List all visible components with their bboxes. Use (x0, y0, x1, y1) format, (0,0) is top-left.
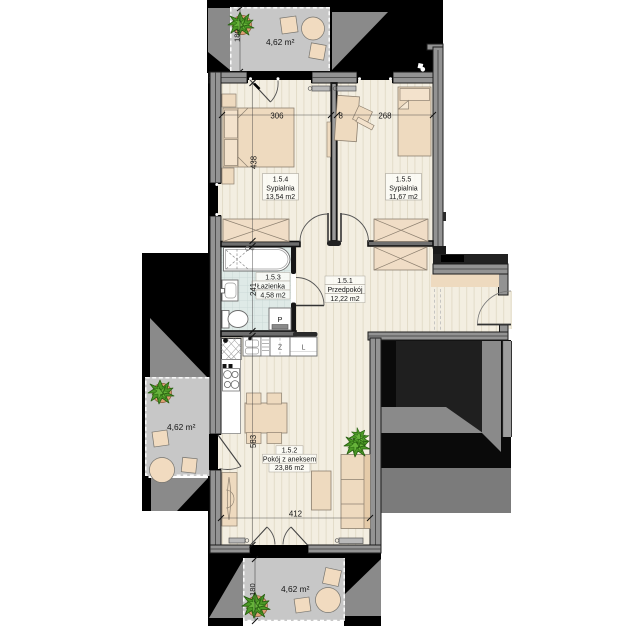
svg-text:268: 268 (378, 112, 392, 121)
svg-text:1.5.1: 1.5.1 (337, 278, 353, 285)
svg-text:4,58 m2: 4,58 m2 (260, 293, 285, 300)
svg-text:L: L (302, 345, 306, 352)
svg-text:1.5.5: 1.5.5 (396, 177, 412, 184)
svg-text:306: 306 (270, 112, 284, 121)
svg-text:11,67 m2: 11,67 m2 (389, 194, 418, 201)
svg-text:Sypialnia: Sypialnia (389, 186, 418, 193)
svg-text:1.5.4: 1.5.4 (273, 177, 289, 184)
svg-text:8: 8 (339, 112, 344, 121)
svg-text:241: 241 (249, 283, 258, 296)
svg-text:Łazienka: Łazienka (257, 284, 285, 291)
svg-text:13,54 m2: 13,54 m2 (266, 194, 295, 201)
svg-text:180: 180 (248, 583, 257, 596)
svg-text:4,62 m²: 4,62 m² (167, 422, 196, 432)
svg-text:1.5.2: 1.5.2 (282, 448, 298, 455)
svg-text:412: 412 (289, 510, 302, 519)
svg-text:180: 180 (233, 29, 242, 42)
svg-text:Przedpokój: Przedpokój (327, 287, 362, 294)
svg-text:Z: Z (278, 345, 283, 352)
svg-text:23,86 m2: 23,86 m2 (275, 465, 304, 472)
svg-text:438: 438 (250, 155, 259, 169)
svg-text:4,62 m²: 4,62 m² (281, 584, 310, 594)
svg-text:583: 583 (249, 434, 258, 448)
svg-text:Pokój z aneksem: Pokój z aneksem (263, 457, 316, 464)
svg-text:P: P (278, 315, 283, 324)
svg-text:12,22 m2: 12,22 m2 (330, 296, 359, 303)
svg-text:1.5.3: 1.5.3 (265, 275, 281, 282)
svg-text:Sypialnia: Sypialnia (266, 186, 295, 193)
svg-text:4,62 m²: 4,62 m² (266, 37, 295, 47)
